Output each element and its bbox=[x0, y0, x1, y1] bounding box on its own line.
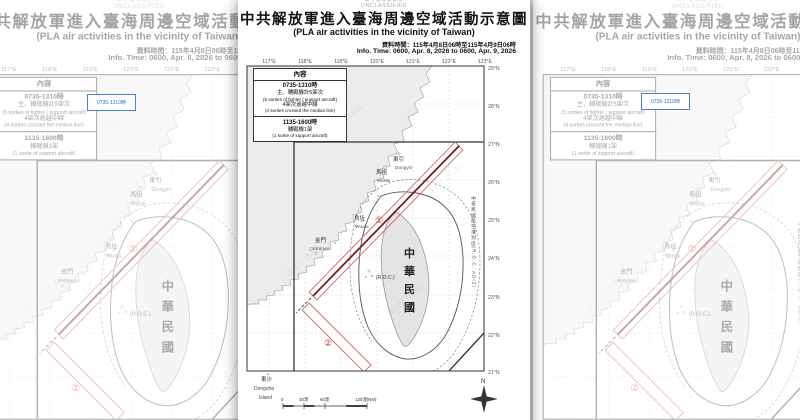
svg-text:Dongyin: Dongyin bbox=[395, 165, 413, 171]
svg-text:123°E: 123°E bbox=[478, 59, 493, 65]
activity-area-2-marker: ② bbox=[324, 338, 332, 348]
svg-text:中: 中 bbox=[404, 246, 415, 260]
svg-text:Kinmen: Kinmen bbox=[313, 246, 330, 252]
svg-text:N: N bbox=[481, 379, 485, 385]
legend-text: (1 sortie of support aircraft) bbox=[254, 133, 346, 138]
svg-text:27°N: 27°N bbox=[488, 142, 500, 148]
svg-text:Matsu: Matsu bbox=[377, 178, 390, 184]
report-page: 23.177.110.91 23.177.110.91 23.177.110.9… bbox=[238, 0, 530, 420]
page-subtitle: (PLA air activities in the vicinity of T… bbox=[238, 27, 530, 37]
svg-text:23°N: 23°N bbox=[488, 295, 500, 301]
legend-box: 內容 0735-1310時 主、輔戰機計5架次 (5 sorties of fi… bbox=[253, 68, 347, 142]
activity-area-1-marker: ① bbox=[375, 215, 383, 225]
svg-text:0: 0 bbox=[281, 397, 284, 402]
svg-text:60浬: 60浬 bbox=[320, 396, 330, 403]
svg-text:Dongsha: Dongsha bbox=[254, 386, 274, 392]
svg-text:25°N: 25°N bbox=[488, 218, 500, 224]
activity-area-2-zone bbox=[302, 303, 371, 372]
median-line-extension bbox=[296, 298, 311, 313]
faded-page-overlay bbox=[533, 0, 800, 420]
svg-text:(R.O.C.): (R.O.C.) bbox=[376, 275, 395, 281]
svg-text:120°E: 120°E bbox=[370, 59, 385, 65]
svg-text:119°E: 119°E bbox=[334, 59, 348, 65]
scale-bar bbox=[283, 403, 367, 409]
highlight-chip-left[interactable]: 0735-1310時 bbox=[87, 94, 136, 111]
carousel-viewport: 23.177.110.91 23.177.110.91 23.177.110.9… bbox=[0, 0, 800, 420]
carousel-page-current: 23.177.110.91 23.177.110.91 23.177.110.9… bbox=[238, 0, 530, 420]
svg-text:22°N: 22°N bbox=[488, 333, 500, 339]
activity-map: 23.177.110.91 23.177.110.91 23.177.110.9… bbox=[238, 0, 530, 420]
carousel-page-next[interactable]: 23.177.110.91 23.177.110.91 23.177.110.9… bbox=[533, 0, 800, 420]
matsu-label: 馬祖 bbox=[376, 168, 388, 176]
svg-text:Wuqiu: Wuqiu bbox=[355, 224, 369, 230]
highlight-chip-right[interactable]: 0735-1310時 bbox=[641, 93, 690, 110]
wuqiu-label: 烏坵 bbox=[354, 214, 366, 222]
legend-header: 內容 bbox=[254, 69, 346, 81]
dongyin-label: 東引 bbox=[393, 155, 404, 163]
scale-bar-labels: 0 30浬 60浬 120浬(NM) bbox=[281, 396, 377, 403]
svg-text:28°N: 28°N bbox=[488, 104, 500, 110]
svg-text:華: 華 bbox=[404, 264, 415, 278]
legend-entry-2: 1135-1600時 輔戰機1架 (1 sortie of support ai… bbox=[254, 117, 346, 141]
svg-text:東沙: 東沙 bbox=[261, 375, 273, 383]
svg-text:24°N: 24°N bbox=[488, 256, 500, 262]
info-time-en: Info. Time: 0600, Apr. 8, 2026 to 0600, … bbox=[357, 48, 516, 55]
svg-text:29°N: 29°N bbox=[488, 66, 500, 72]
kinmen-label: 金門 bbox=[315, 236, 327, 244]
compass-rose: N bbox=[471, 379, 497, 412]
svg-text:island: island bbox=[259, 395, 272, 401]
legend-time-2: 1135-1600時 bbox=[254, 120, 346, 127]
legend-entry-1: 0735-1310時 主、輔戰機計5架次 (5 sorties of fight… bbox=[254, 81, 346, 118]
svg-text:30浬: 30浬 bbox=[299, 396, 309, 403]
legend-text: (4 sorties crossed the median line) bbox=[254, 108, 346, 113]
svg-text:21°N: 21°N bbox=[488, 370, 500, 376]
svg-text:120浬(NM): 120浬(NM) bbox=[355, 396, 377, 403]
svg-text:117°E: 117°E bbox=[262, 59, 276, 65]
svg-text:118°E: 118°E bbox=[298, 59, 312, 65]
adiz-label: 中華民國防空識別區(R.O.C. ADIZ) bbox=[471, 195, 477, 288]
latitude-labels: 29°N28°N 27°N26°N 25°N24°N 23°N22°N 21°N bbox=[488, 66, 500, 376]
svg-text:國: 國 bbox=[404, 301, 415, 314]
page-title: 中共解放軍進入臺海周邊空域活動示意圖 bbox=[238, 8, 530, 29]
svg-text:26°N: 26°N bbox=[488, 180, 500, 186]
longitude-labels: 117°E118°E 119°E120°E 121°E122°E 123°E bbox=[262, 59, 493, 65]
svg-text:122°E: 122°E bbox=[442, 59, 457, 65]
dongsha-label: 東沙 Dongsha island bbox=[254, 373, 274, 401]
svg-text:121°E: 121°E bbox=[406, 59, 421, 65]
svg-text:民: 民 bbox=[404, 283, 415, 296]
